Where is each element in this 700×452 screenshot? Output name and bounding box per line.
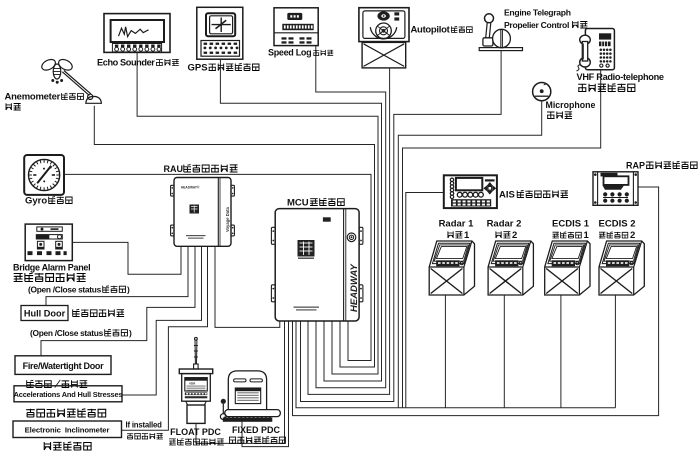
- svg-text:Hull Door: Hull Door: [24, 309, 66, 319]
- svg-text:Voyage Data: Voyage Data: [225, 207, 230, 232]
- svg-text:GPS: GPS: [188, 63, 208, 74]
- svg-text:Autopilot: Autopilot: [411, 25, 451, 36]
- svg-text:FIXED PDC: FIXED PDC: [232, 425, 281, 435]
- svg-text:ECDIS 2: ECDIS 2: [599, 219, 636, 230]
- svg-text:If installed: If installed: [126, 421, 163, 430]
- svg-text:2: 2: [630, 230, 635, 241]
- svg-text:MCU: MCU: [287, 198, 309, 209]
- svg-text:Anemometer: Anemometer: [5, 92, 61, 103]
- svg-text:FLOAT PDC: FLOAT PDC: [170, 427, 221, 437]
- svg-text:(Open /Close status: (Open /Close status: [30, 328, 104, 338]
- svg-text:2: 2: [512, 230, 517, 241]
- svg-text:(Open /Close status: (Open /Close status: [28, 285, 102, 295]
- svg-text:1: 1: [584, 230, 590, 241]
- svg-text:1: 1: [464, 230, 470, 241]
- svg-text:Gyro: Gyro: [25, 196, 47, 207]
- svg-text:Speed Log: Speed Log: [268, 48, 311, 58]
- svg-text:Microphone: Microphone: [546, 100, 596, 110]
- svg-text:Propelier Control: Propelier Control: [504, 20, 569, 30]
- svg-text:ECDIS 1: ECDIS 1: [552, 219, 590, 230]
- svg-text:Electronic Inclinometer: Electronic Inclinometer: [25, 426, 110, 435]
- svg-text:Echo Sounder: Echo Sounder: [97, 58, 155, 68]
- svg-text:VHF Radio-telephone: VHF Radio-telephone: [577, 72, 664, 82]
- svg-text:Bridge Alarm Panel: Bridge Alarm Panel: [13, 263, 90, 273]
- svg-text:Fire/Watertight Door: Fire/Watertight Door: [23, 361, 104, 371]
- svg-text:HEADWAY: HEADWAY: [349, 262, 360, 312]
- svg-text:HEADWAY®: HEADWAY®: [181, 186, 200, 190]
- svg-text:Engine Telegraph: Engine Telegraph: [504, 8, 571, 18]
- svg-text:): ): [127, 285, 130, 295]
- svg-text:Radar 2: Radar 2: [487, 219, 522, 230]
- svg-text:): ): [129, 328, 132, 338]
- svg-text:AIS: AIS: [499, 190, 515, 201]
- svg-text:RAP: RAP: [626, 161, 645, 171]
- svg-text:VDR: VDR: [189, 381, 196, 385]
- svg-text:Radar 1: Radar 1: [439, 219, 475, 230]
- svg-text:Accelerations And Hull Stresse: Accelerations And Hull Stresses: [14, 390, 123, 399]
- svg-text:RAU: RAU: [164, 164, 184, 174]
